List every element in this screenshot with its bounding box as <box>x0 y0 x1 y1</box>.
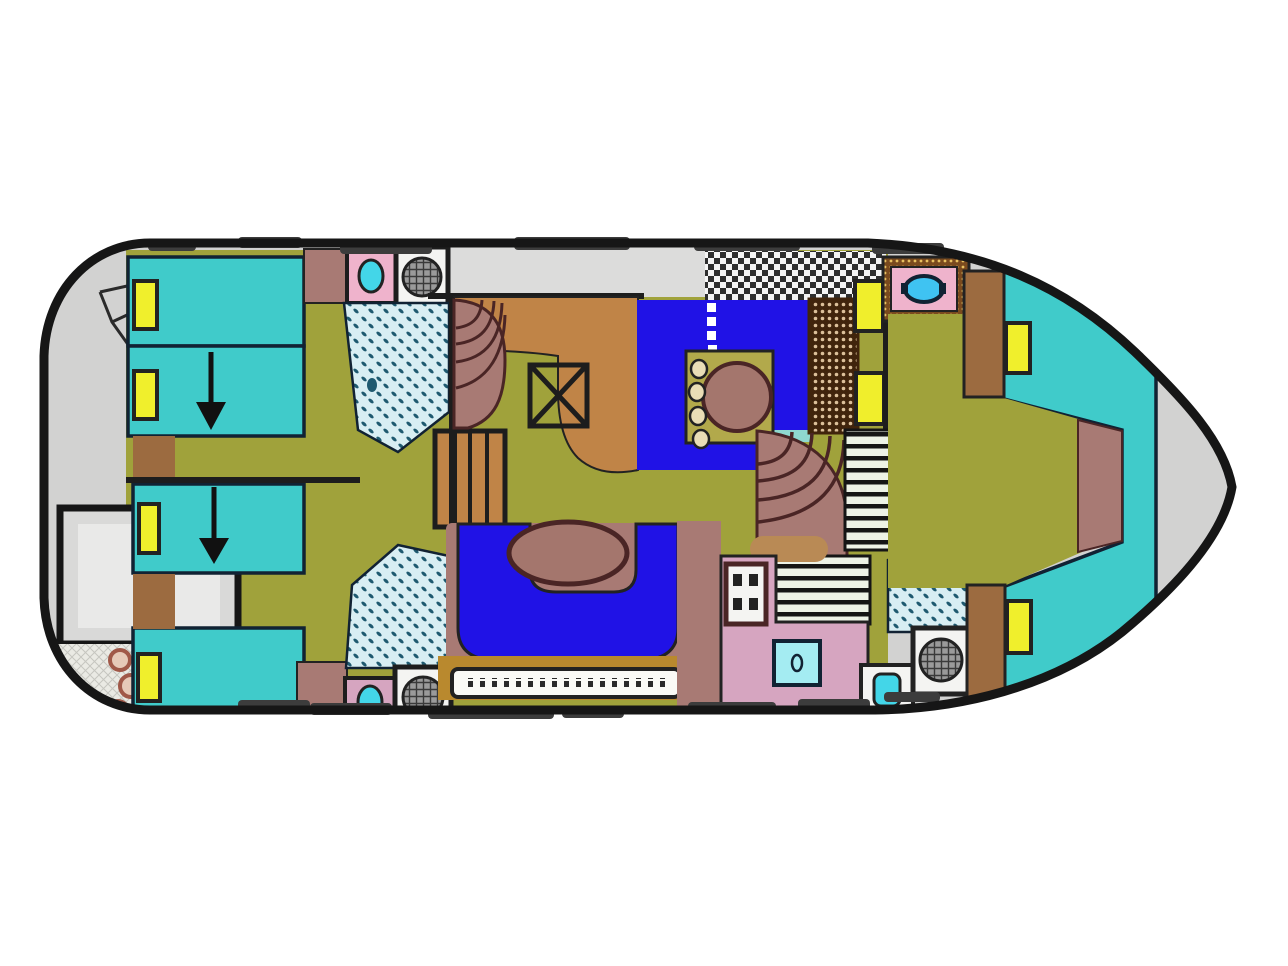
salon-table <box>509 522 627 584</box>
floorplan-svg <box>0 0 1288 966</box>
boat-floorplan-canvas <box>0 0 1288 966</box>
wardrobe-mauve-bottom <box>297 662 347 726</box>
washbasin-icon <box>920 639 962 681</box>
sink-tap <box>901 283 908 294</box>
door-track-ticks <box>462 678 670 687</box>
side-walkway <box>430 245 706 297</box>
helm-seat-base <box>809 299 858 433</box>
helm-seat-cushion <box>855 281 883 331</box>
pillow <box>134 281 157 329</box>
shower-tray <box>774 641 820 685</box>
window-panel <box>726 564 766 624</box>
pillow <box>134 371 157 419</box>
pillow <box>1006 323 1030 373</box>
wardrobe <box>967 585 1005 699</box>
pillow <box>1007 601 1031 653</box>
wardrobe <box>964 271 1004 397</box>
dinette-table <box>703 363 771 431</box>
berth-infill-cushion <box>1078 420 1122 552</box>
sink-icon <box>905 276 943 302</box>
sink-tap <box>939 283 946 294</box>
drain-icon <box>367 378 377 392</box>
pillow <box>138 654 160 701</box>
nightstand <box>133 574 175 629</box>
toilet-icon <box>359 260 383 292</box>
pillow <box>139 504 159 553</box>
helm-seat-cushion <box>856 373 884 424</box>
lower-steps-slats <box>774 556 870 624</box>
interior <box>56 245 1156 728</box>
cabin-divider-wall <box>126 477 360 483</box>
wardrobe-mauve-top <box>304 249 346 303</box>
nightstand <box>133 436 175 481</box>
bench-mauve <box>677 521 721 711</box>
washbasin-icon <box>403 258 441 296</box>
